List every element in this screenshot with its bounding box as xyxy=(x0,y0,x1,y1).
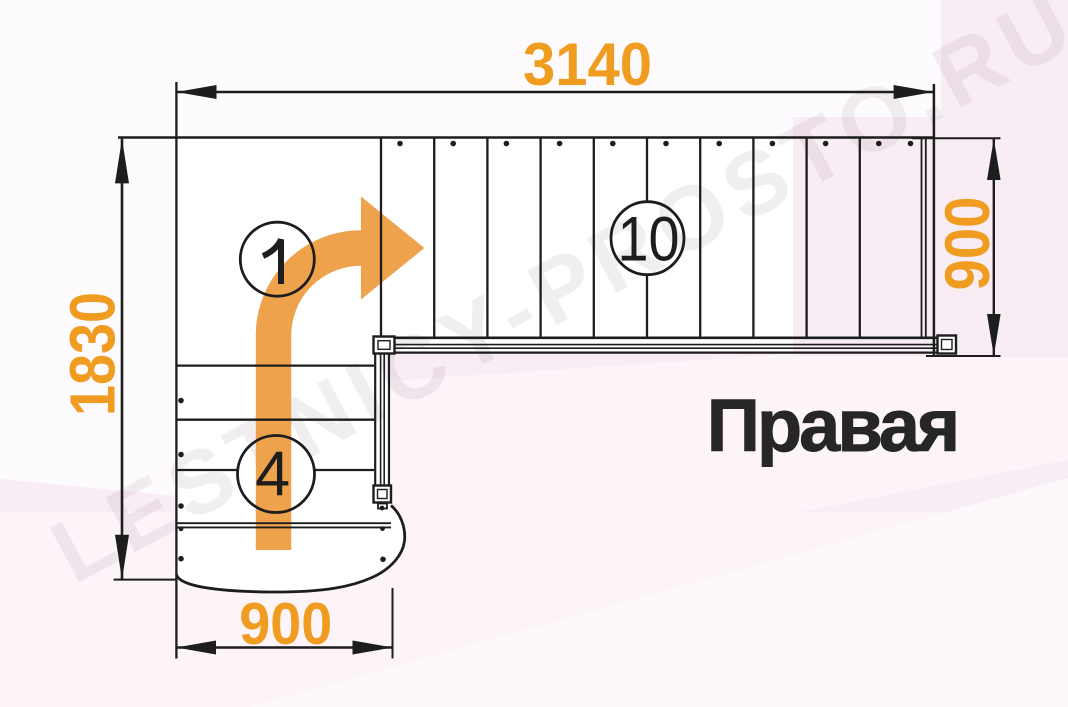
svg-text:900: 900 xyxy=(239,591,332,657)
svg-text:1830: 1830 xyxy=(57,292,129,416)
svg-text:Правая: Правая xyxy=(707,384,957,467)
svg-text:10: 10 xyxy=(618,205,680,275)
svg-text:4: 4 xyxy=(255,440,290,510)
svg-text:900: 900 xyxy=(933,197,1003,291)
svg-text:3140: 3140 xyxy=(523,31,652,98)
